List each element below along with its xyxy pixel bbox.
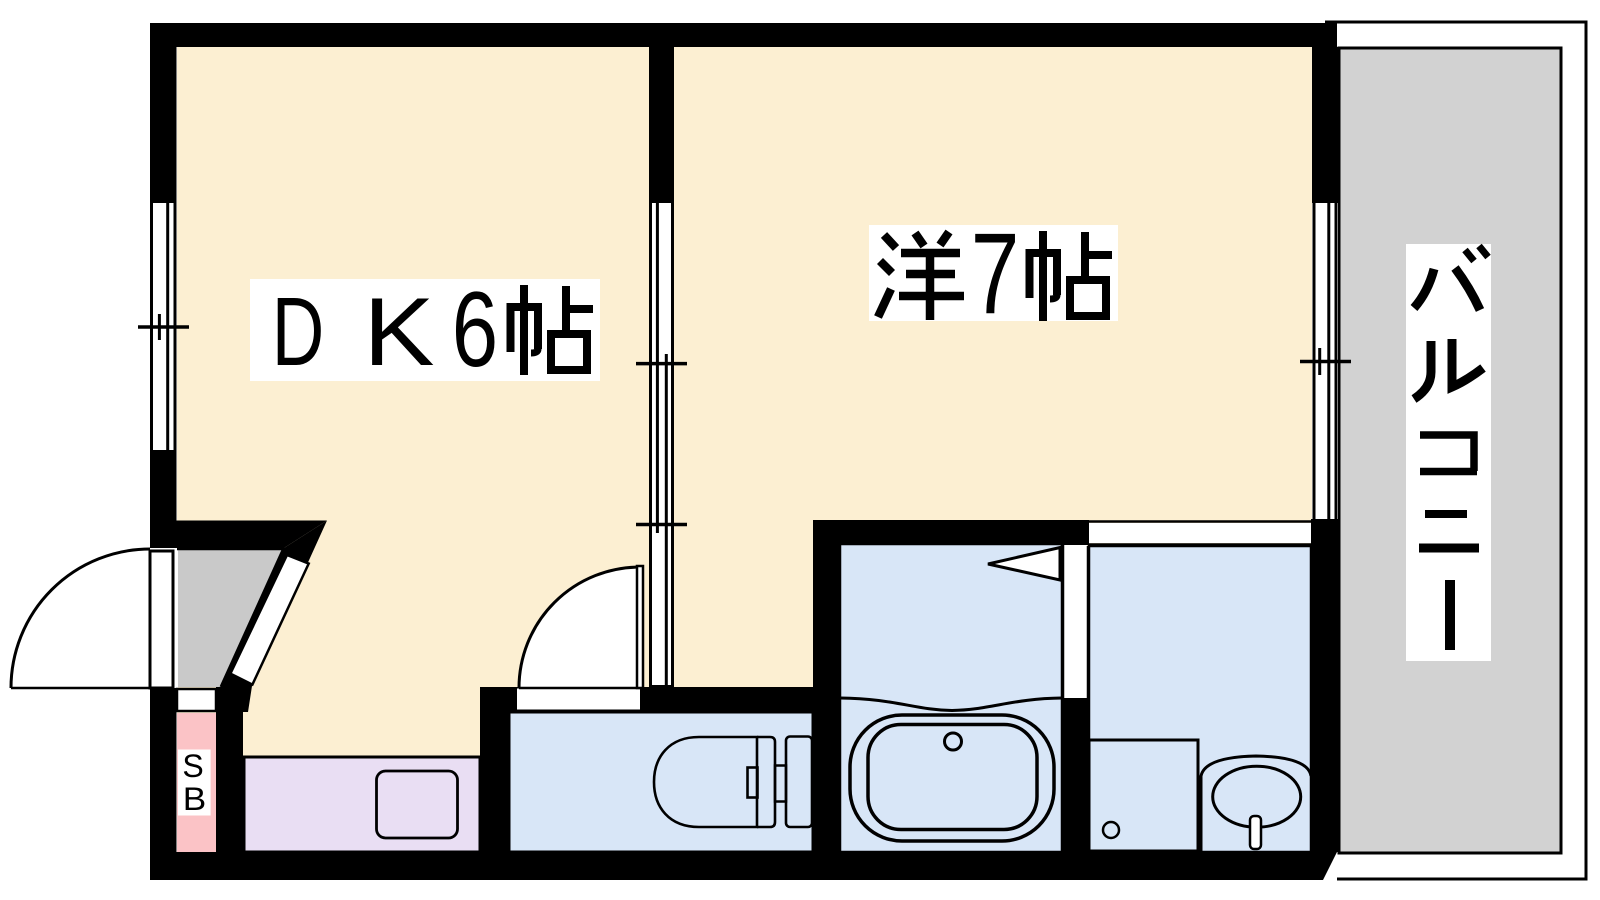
svg-text:6: 6 xyxy=(452,270,498,389)
svg-text:K: K xyxy=(363,277,434,385)
svg-text:B: B xyxy=(183,782,206,817)
svg-text:S: S xyxy=(182,748,203,784)
svg-text:D: D xyxy=(272,278,325,387)
svg-text:7: 7 xyxy=(971,209,1020,337)
